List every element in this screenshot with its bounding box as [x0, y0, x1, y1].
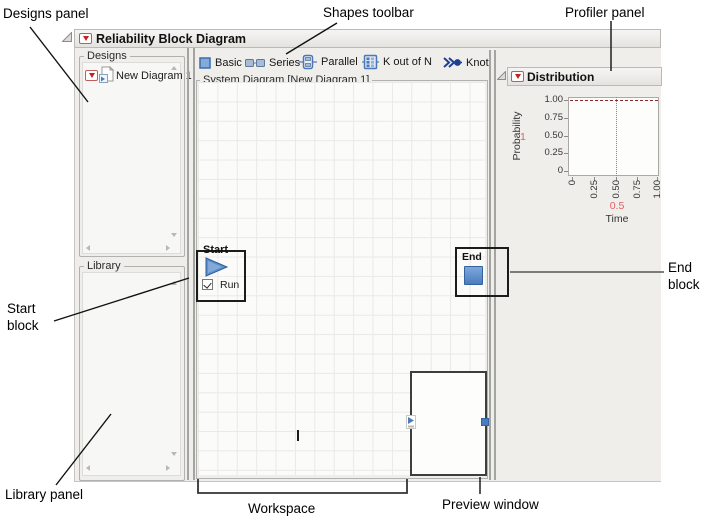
x-tick-label: 0.25 — [590, 180, 600, 206]
annotation-shapes-toolbar: Shapes toolbar — [323, 4, 414, 21]
series-shape-icon — [245, 58, 265, 68]
preview-window[interactable] — [410, 371, 487, 476]
run-play-icon[interactable] — [205, 257, 228, 277]
annotation-profiler-panel: Profiler panel — [565, 4, 645, 21]
toolbar-label-series: Series — [269, 57, 300, 69]
library-scroll-left-icon[interactable] — [86, 465, 90, 471]
x-tick-label: 1.00 — [653, 180, 663, 206]
toolbar-label-k-out-of-n: K out of N — [383, 56, 432, 68]
toolbar-button-parallel[interactable]: Parallel — [299, 53, 358, 70]
workspace-text-caret — [297, 430, 299, 441]
designs-scroll-left-icon[interactable] — [86, 245, 90, 251]
annotation-workspace: Workspace — [248, 500, 315, 517]
x-axis-title: Time — [598, 213, 636, 225]
annotated-screenshot: Reliability Block Diagram Designs New Di… — [0, 0, 710, 526]
toolbar-button-series[interactable]: Series — [245, 54, 300, 71]
annotation-designs-panel: Designs panel — [3, 5, 89, 22]
start-block-title: Start — [203, 244, 228, 256]
x-tick-label: 0.75 — [633, 180, 643, 206]
annotation-start-block: Start block — [7, 300, 49, 334]
library-group-label: Library — [84, 260, 124, 272]
toolbar-label-parallel: Parallel — [321, 56, 358, 68]
end-block-shape[interactable] — [464, 266, 483, 285]
diagram-document-icon — [99, 66, 114, 83]
preview-start-block-icon — [406, 415, 417, 429]
y-tick-label: 1.00 — [541, 95, 563, 105]
distribution-disclosure-icon[interactable] — [497, 71, 506, 80]
profiler-plot-area[interactable] — [568, 97, 659, 176]
toolbar-label-knot: Knot — [466, 57, 489, 69]
y-tick-label: 0.25 — [541, 148, 563, 158]
run-checkbox-label: Run — [220, 279, 239, 291]
parallel-shape-icon — [299, 54, 317, 70]
run-checkbox[interactable] — [202, 279, 213, 290]
designs-group-label: Designs — [84, 50, 130, 62]
designs-scroll-right-icon[interactable] — [166, 245, 170, 251]
red-triangle-menu-icon[interactable] — [79, 33, 92, 44]
crosshair-vertical-line[interactable] — [616, 97, 617, 176]
designs-item-new-diagram-1[interactable]: New Diagram 1 — [116, 70, 192, 82]
library-scroll-area[interactable] — [82, 272, 181, 476]
annotation-library-panel: Library panel — [5, 486, 83, 503]
report-titlebar: Reliability Block Diagram — [74, 29, 661, 48]
k-out-of-n-shape-icon — [362, 54, 379, 70]
y-tick-label: 0 — [541, 166, 563, 176]
distribution-title: Distribution — [527, 70, 594, 84]
annotation-end-block: End block — [668, 259, 708, 293]
reliability-series-line — [570, 100, 658, 101]
annotation-preview-window: Preview window — [442, 496, 539, 513]
toolbar-button-basic[interactable]: Basic — [199, 54, 242, 71]
toolbar-label-basic: Basic — [215, 57, 242, 69]
toolbar-button-k-out-of-n[interactable]: K out of N — [362, 53, 432, 70]
distribution-red-triangle-icon[interactable] — [511, 71, 524, 82]
y-tick-label: 0.75 — [541, 113, 563, 123]
library-scroll-up-icon[interactable] — [171, 281, 177, 285]
library-scroll-down-icon[interactable] — [171, 452, 177, 456]
x-tick-label: 0 — [568, 180, 578, 206]
library-scroll-right-icon[interactable] — [166, 465, 170, 471]
window-title: Reliability Block Diagram — [96, 32, 246, 46]
diagram-red-triangle-icon[interactable] — [85, 70, 98, 81]
y-axis-title: Probability — [511, 101, 523, 171]
left-splitter-bar[interactable] — [187, 48, 189, 480]
toolbar-button-knot[interactable]: Knot — [443, 54, 489, 71]
designs-scroll-area[interactable] — [82, 62, 181, 254]
preview-end-block-icon — [481, 418, 489, 426]
distribution-header: Distribution — [507, 67, 662, 86]
left-splitter-bar[interactable] — [193, 48, 195, 480]
designs-scroll-down-icon[interactable] — [171, 233, 177, 237]
basic-shape-icon — [199, 57, 211, 69]
window-disclosure-icon[interactable] — [62, 32, 72, 42]
end-block-title: End — [462, 251, 482, 263]
y-tick-label: 0.50 — [541, 131, 563, 141]
crosshair-x-value: 0.5 — [605, 200, 629, 212]
knot-shape-icon — [443, 56, 462, 69]
